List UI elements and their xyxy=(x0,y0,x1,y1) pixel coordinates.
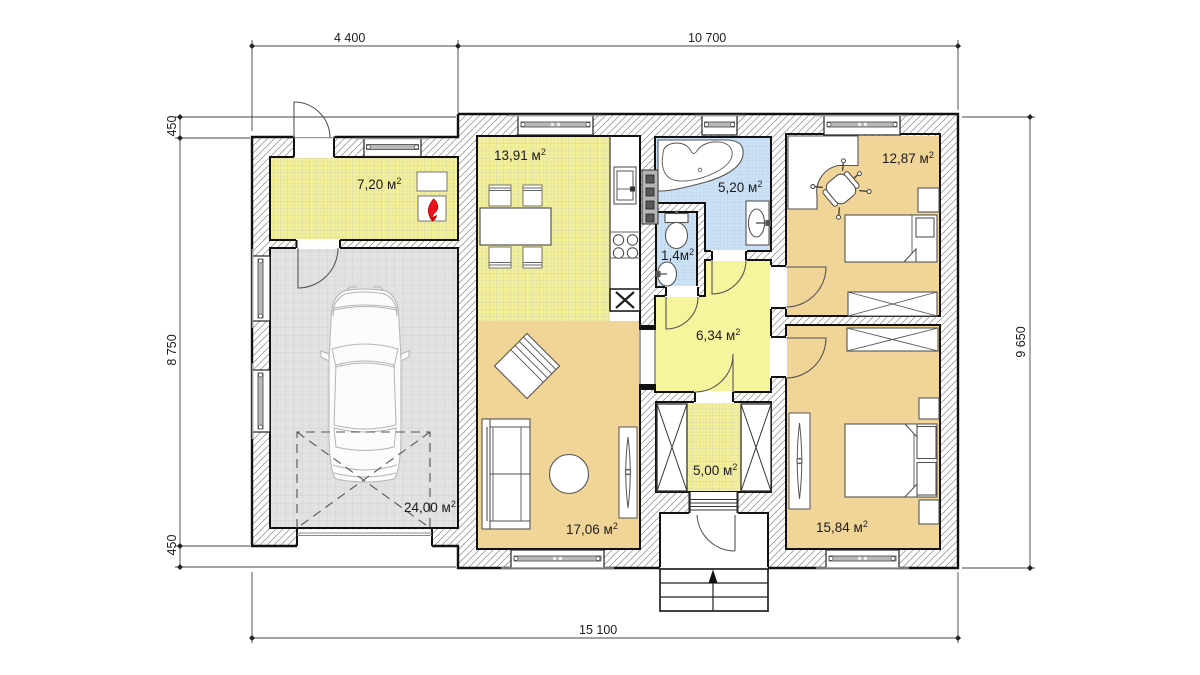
svg-text:5,20 м2: 5,20 м2 xyxy=(718,179,762,195)
svg-text:13,91 м2: 13,91 м2 xyxy=(494,147,546,163)
svg-text:5,00 м2: 5,00 м2 xyxy=(693,462,737,478)
svg-text:17,06 м2: 17,06 м2 xyxy=(566,521,618,537)
svg-text:4 400: 4 400 xyxy=(334,31,365,45)
svg-text:8 750: 8 750 xyxy=(165,334,179,365)
svg-text:12,87 м2: 12,87 м2 xyxy=(882,150,934,166)
svg-text:15 100: 15 100 xyxy=(579,623,617,637)
svg-text:6,34 м2: 6,34 м2 xyxy=(696,327,740,343)
svg-text:10 700: 10 700 xyxy=(688,31,726,45)
svg-text:15,84 м2: 15,84 м2 xyxy=(816,519,868,535)
svg-text:24,00 м2: 24,00 м2 xyxy=(404,499,456,515)
svg-text:450: 450 xyxy=(165,116,179,137)
svg-text:9 650: 9 650 xyxy=(1014,326,1028,357)
svg-text:450: 450 xyxy=(165,535,179,556)
svg-text:7,20 м2: 7,20 м2 xyxy=(357,176,401,192)
